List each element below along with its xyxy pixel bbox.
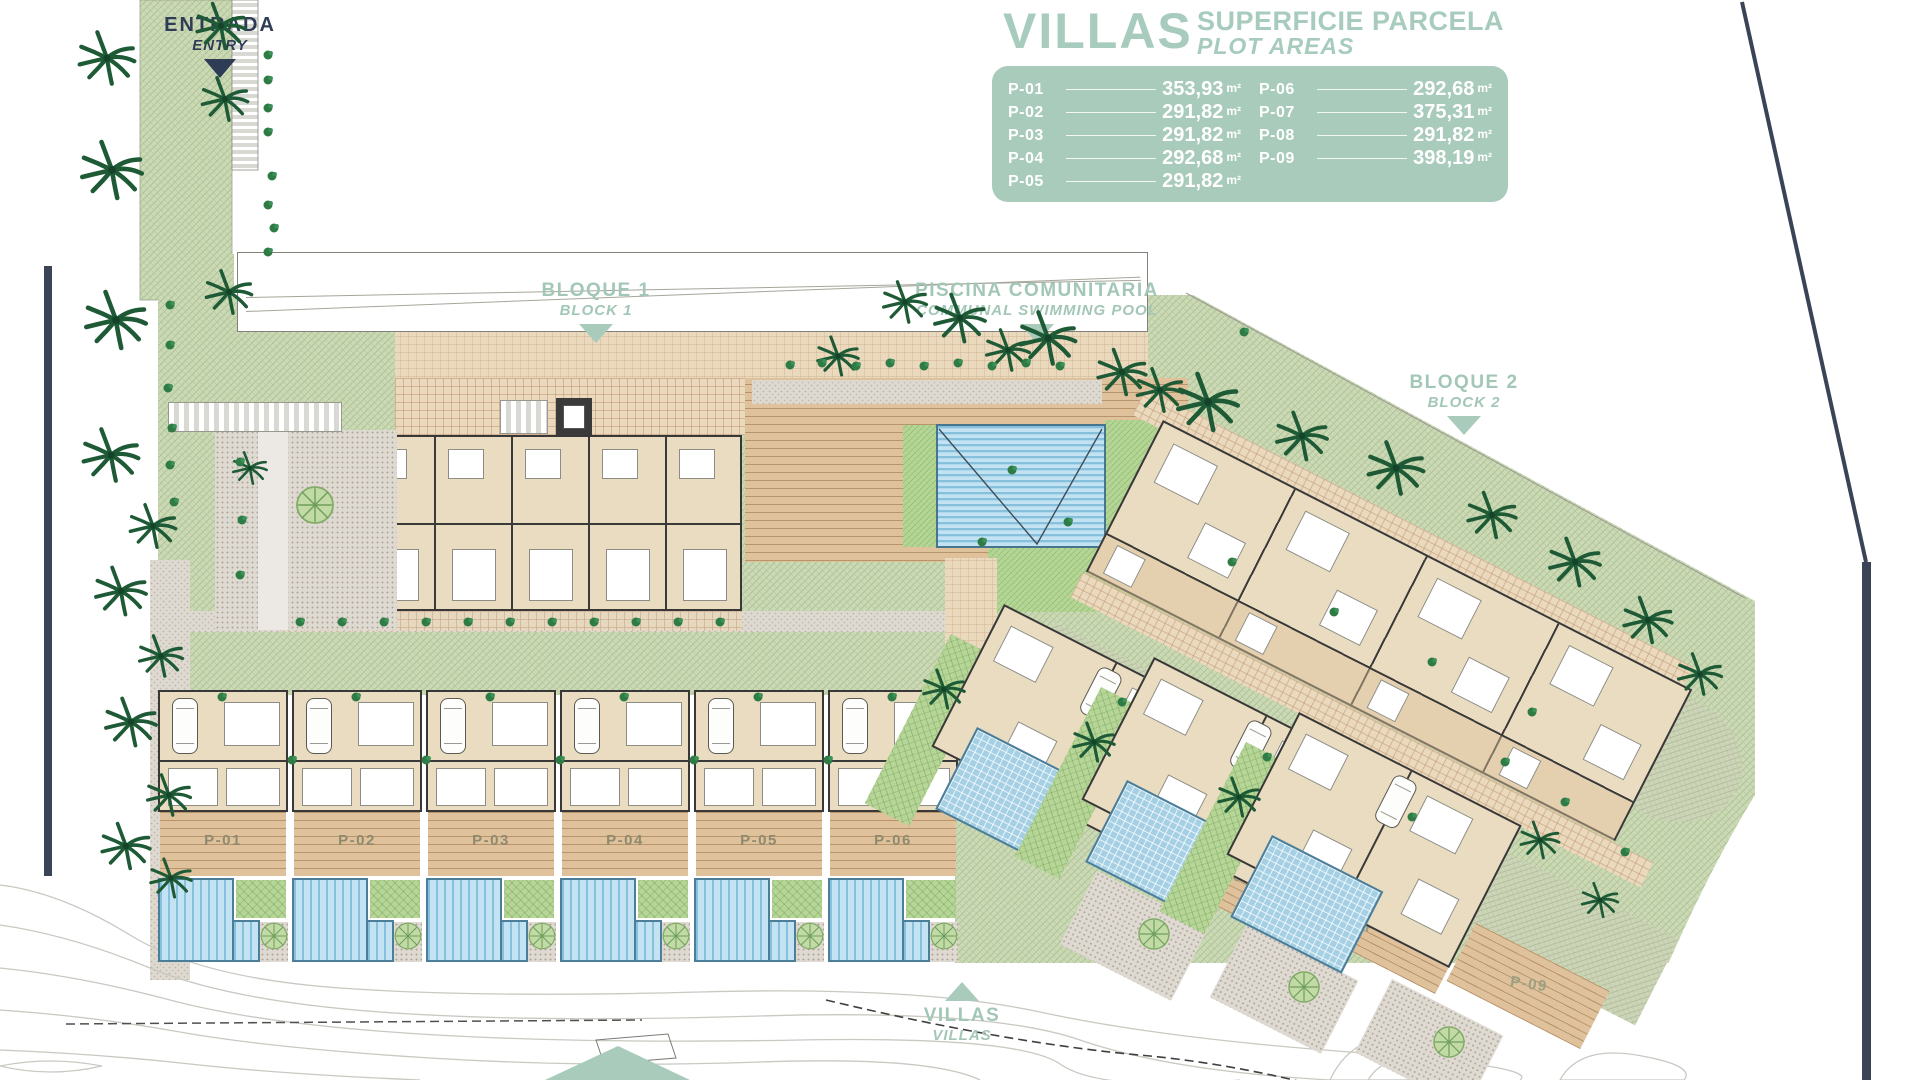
villa-plot-label: P-03 — [428, 832, 554, 849]
villa-building — [426, 690, 556, 812]
villa-building — [560, 690, 690, 812]
villa-garden — [662, 922, 690, 962]
entry-label: ENTRADA ENTRY — [120, 14, 320, 78]
villa-room — [762, 768, 816, 806]
villa-lawn — [236, 880, 286, 918]
legend-subtitle-en: PLOT AREAS — [1197, 35, 1504, 58]
villas-arrow-icon — [945, 982, 979, 1001]
plot-area-row: P-08291,82m² — [1259, 124, 1492, 147]
private-pool — [292, 878, 368, 962]
block2-room — [1417, 578, 1482, 640]
plot-id: P-01 — [1008, 81, 1060, 99]
plot-area-row: P-02291,82m² — [1008, 101, 1241, 124]
villa-deck: P-01 — [160, 812, 286, 876]
villa-wall — [562, 760, 688, 762]
villa-lawn — [370, 880, 420, 918]
entry-label-secondary: ENTRY — [120, 37, 320, 54]
block1-room — [525, 449, 561, 479]
legend-subtitle: SUPERFICIE PARCELA PLOT AREAS — [1197, 8, 1504, 58]
villa-plot-label: P-01 — [160, 832, 286, 849]
villa-room — [760, 702, 816, 746]
unit-label: m² — [1226, 127, 1241, 141]
entry-arrow-icon — [204, 59, 236, 78]
communal-pool — [937, 425, 1105, 547]
villa-room — [168, 768, 218, 806]
plot-id: P-09 — [1259, 150, 1311, 168]
car-icon — [842, 698, 868, 754]
villa-room — [1288, 734, 1349, 791]
block1-arrow-icon — [579, 324, 613, 343]
entry-label-primary: ENTRADA — [120, 14, 320, 37]
private-pool — [768, 920, 796, 962]
villa-plot-label: P-06 — [830, 832, 956, 849]
block2-label-secondary: BLOCK 2 — [1364, 394, 1564, 411]
pool-arrow-icon — [1020, 324, 1054, 343]
villa-room — [570, 768, 620, 806]
plot-area-value: 292,68 — [1413, 78, 1474, 100]
plot-area-row: P-06292,68m² — [1259, 78, 1492, 101]
block2-label: BLOQUE 2 BLOCK 2 — [1364, 372, 1564, 435]
villa-wall — [428, 760, 554, 762]
villa-pool-zone — [292, 878, 422, 962]
block1-patio — [606, 549, 650, 601]
block1-room — [679, 449, 715, 479]
villa-deck: P-06 — [830, 812, 956, 876]
villa-garden — [394, 922, 422, 962]
block1-stairs — [500, 400, 548, 434]
villa-building — [292, 690, 422, 812]
block2-room — [1154, 443, 1219, 505]
villa-pool-zone — [560, 878, 690, 962]
private-pool — [902, 920, 930, 962]
leader-line — [1066, 112, 1156, 113]
unit-label: m² — [1477, 150, 1492, 164]
dashed-boundary — [66, 1000, 1395, 1080]
villa-garden — [528, 922, 556, 962]
villa-room — [494, 768, 548, 806]
plot-area-row: P-07375,31m² — [1259, 101, 1492, 124]
leader-line — [1066, 135, 1156, 136]
villa-garden — [260, 922, 288, 962]
block2-room — [1451, 657, 1510, 714]
villa-pool-zone — [694, 878, 824, 962]
villa-garden — [930, 922, 958, 962]
villa-plot-label: P-02 — [294, 832, 420, 849]
villa-room — [302, 768, 352, 806]
leader-line — [1317, 135, 1407, 136]
villa-room — [628, 768, 682, 806]
car-icon — [708, 698, 734, 754]
block1-room — [448, 449, 484, 479]
villa-building — [158, 690, 288, 812]
unit-label: m² — [1477, 104, 1492, 118]
villa-room — [1400, 878, 1459, 935]
villa-building — [694, 690, 824, 812]
block1-courtyard — [215, 430, 397, 630]
plot-area-row: P-04292,68m² — [1008, 147, 1241, 170]
site-plan: ENTRADA ENTRY BLOQUE 1 BLOCK 1 PISCINA C… — [0, 0, 1920, 1080]
plot-area-value: 398,19 — [1413, 147, 1474, 169]
plot-area-row: P-01353,93m² — [1008, 78, 1241, 101]
leader-line — [1066, 89, 1156, 90]
unit-label: m² — [1226, 81, 1241, 95]
villa-room — [358, 702, 414, 746]
car-icon — [306, 698, 332, 754]
pool-label: PISCINA COMUNITARIA COMMUNAL SWIMMING PO… — [887, 280, 1187, 343]
leader-line — [1317, 112, 1407, 113]
unit-label: m² — [1226, 104, 1241, 118]
villa-room — [224, 702, 280, 746]
villa-pool-zone — [158, 878, 288, 962]
plot-areas-column-2: P-06292,68m²P-07375,31m²P-08291,82m²P-09… — [1259, 78, 1492, 192]
plot-area-row: P-09398,19m² — [1259, 147, 1492, 170]
block1-patio — [529, 549, 573, 601]
legend-title: VILLAS — [1003, 2, 1193, 60]
block1-label-secondary: BLOCK 1 — [496, 302, 696, 319]
unit-label: m² — [1477, 81, 1492, 95]
villa-deck: P-05 — [696, 812, 822, 876]
plot-id: P-08 — [1259, 127, 1311, 145]
villa-pool-zone — [426, 878, 556, 962]
block1-label: BLOQUE 1 BLOCK 1 — [496, 280, 696, 343]
plot-id: P-04 — [1008, 150, 1060, 168]
car-icon — [172, 698, 198, 754]
block2-arrow-icon — [1447, 416, 1481, 435]
block2-room — [1549, 645, 1614, 707]
villa-pool-zone — [828, 878, 958, 962]
plot-area-row: P-05291,82m² — [1008, 170, 1241, 193]
plot-area-value: 291,82 — [1162, 170, 1223, 192]
villa-lawn — [772, 880, 822, 918]
car-icon — [574, 698, 600, 754]
villas-label-secondary: VILLAS — [862, 1027, 1062, 1044]
plot-id: P-03 — [1008, 127, 1060, 145]
block2-label-primary: BLOQUE 2 — [1364, 372, 1564, 394]
plot-area-value: 291,82 — [1413, 124, 1474, 146]
private-pool — [500, 920, 528, 962]
villa-room — [492, 702, 548, 746]
private-pool — [366, 920, 394, 962]
leader-line — [1066, 158, 1156, 159]
unit-label: m² — [1477, 127, 1492, 141]
unit-label: m² — [1226, 150, 1241, 164]
villa-lawn — [504, 880, 554, 918]
plot-area-value: 291,82 — [1162, 124, 1223, 146]
leader-line — [1066, 181, 1156, 182]
villa-room — [360, 768, 414, 806]
villa-wall — [160, 760, 286, 762]
villas-label-primary: VILLAS — [862, 1005, 1062, 1027]
villa-plot: P-02 — [292, 690, 422, 962]
block2-room — [1319, 589, 1378, 646]
villa-wall — [294, 760, 420, 762]
villa-room — [993, 626, 1054, 683]
plot-area-value: 291,82 — [1162, 101, 1223, 123]
pool-label-primary: PISCINA COMUNITARIA — [887, 280, 1187, 302]
villa-room — [1409, 795, 1473, 854]
villa-plot: P-05 — [694, 690, 824, 962]
villa-plot-label: P-04 — [562, 832, 688, 849]
unit-label: m² — [1226, 173, 1241, 187]
block1-elevator — [556, 398, 592, 436]
villa-room — [436, 768, 486, 806]
private-pool — [828, 878, 904, 962]
pool-label-secondary: COMMUNAL SWIMMING POOL — [887, 302, 1187, 319]
block1-room — [602, 449, 638, 479]
block2-room — [1187, 522, 1246, 579]
villa-room — [226, 768, 280, 806]
private-pool — [232, 920, 260, 962]
block1-patio — [452, 549, 496, 601]
plot-id: P-07 — [1259, 104, 1311, 122]
private-pool — [158, 878, 234, 962]
plot-id: P-02 — [1008, 104, 1060, 122]
plot-area-row: P-03291,82m² — [1008, 124, 1241, 147]
car-icon — [440, 698, 466, 754]
plot-id: P-05 — [1008, 173, 1060, 191]
villa-room — [1143, 679, 1204, 736]
villa-garden — [796, 922, 824, 962]
villa-room — [626, 702, 682, 746]
private-pool — [426, 878, 502, 962]
villa-plot: P-01 — [158, 690, 288, 962]
leader-line — [1317, 158, 1407, 159]
private-pool — [560, 878, 636, 962]
villas-label: VILLAS VILLAS — [862, 982, 1062, 1044]
plot-areas-panel: P-01353,93m²P-02291,82m²P-03291,82m²P-04… — [992, 66, 1508, 202]
villa-plot: P-03 — [426, 690, 556, 962]
villa-deck: P-02 — [294, 812, 420, 876]
block1-label-primary: BLOQUE 1 — [496, 280, 696, 302]
villa-plot-label: P-05 — [696, 832, 822, 849]
plot-id: P-06 — [1259, 81, 1311, 99]
plot-area-value: 375,31 — [1413, 101, 1474, 123]
villa-plot: P-04 — [560, 690, 690, 962]
block2-room — [1285, 511, 1350, 573]
plot-area-value: 292,68 — [1162, 147, 1223, 169]
legend-subtitle-es: SUPERFICIE PARCELA — [1197, 8, 1504, 35]
private-pool — [694, 878, 770, 962]
villa-lawn — [638, 880, 688, 918]
leader-line — [1317, 89, 1407, 90]
villa-deck: P-04 — [562, 812, 688, 876]
villa-room — [704, 768, 754, 806]
villa-wall — [696, 760, 822, 762]
villa-lawn — [906, 880, 956, 918]
villa-deck: P-03 — [428, 812, 554, 876]
private-pool — [634, 920, 662, 962]
block2-room — [1583, 724, 1642, 781]
block1-patio — [683, 549, 727, 601]
entry-walkway — [168, 402, 342, 432]
plot-area-value: 353,93 — [1162, 78, 1223, 100]
plot-areas-column-1: P-01353,93m²P-02291,82m²P-03291,82m²P-04… — [1008, 78, 1241, 192]
